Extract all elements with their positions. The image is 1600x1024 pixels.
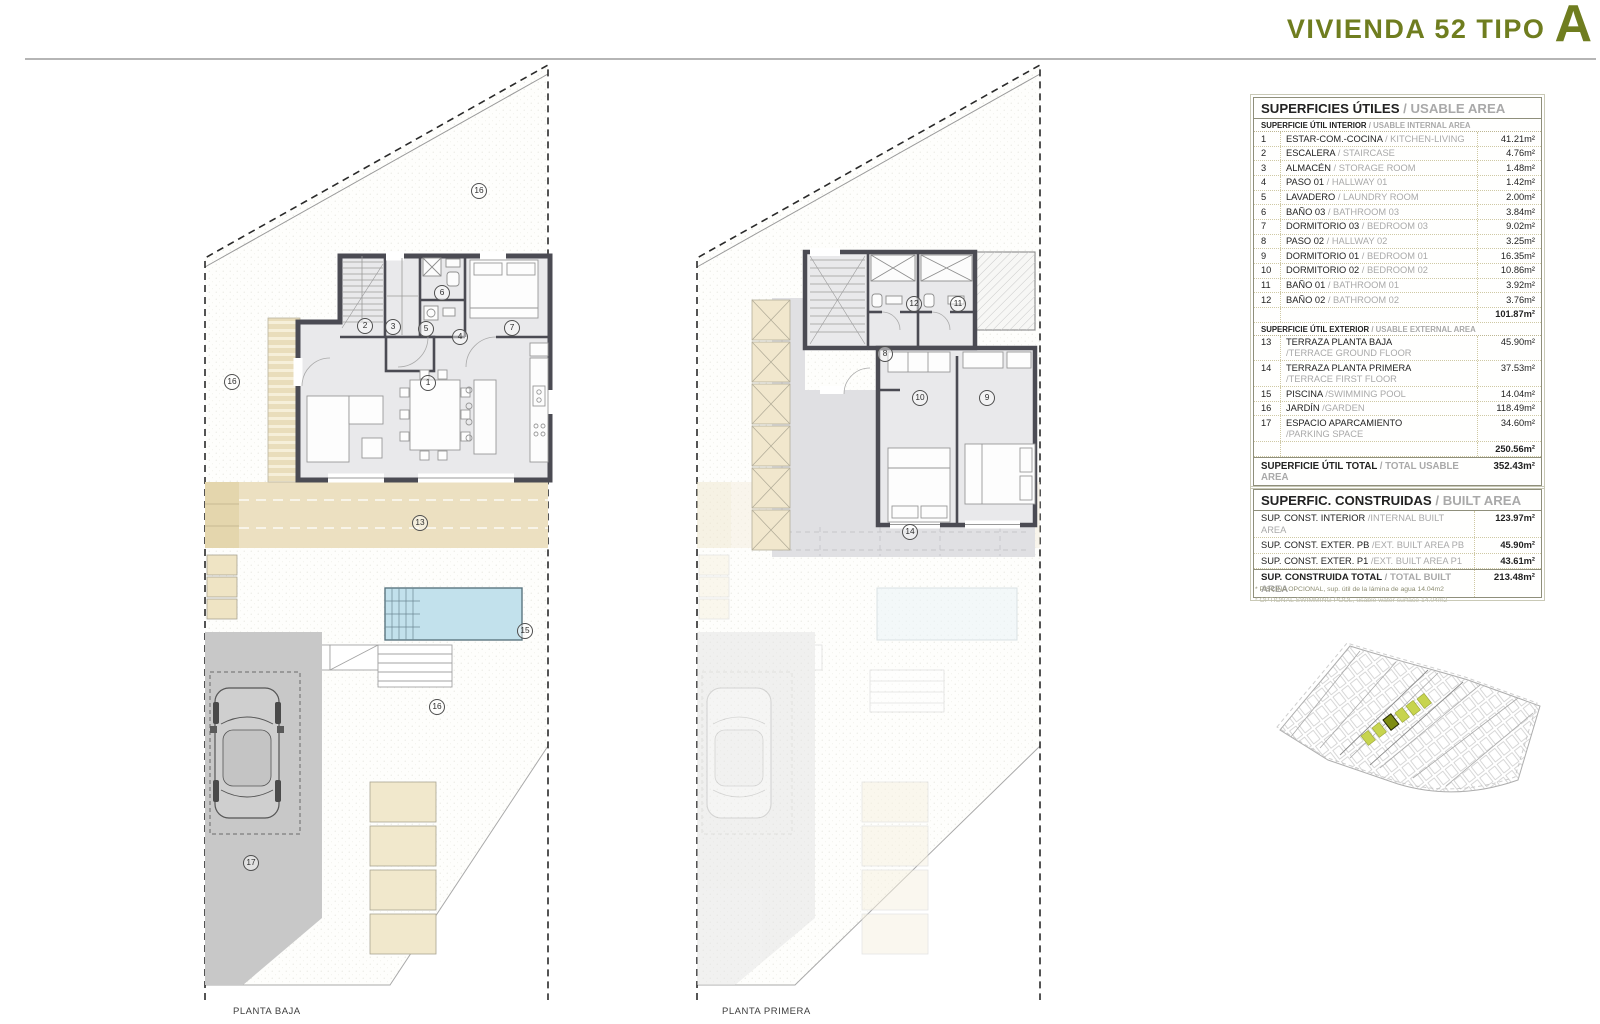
room-label-terrace-ff: 14 (902, 524, 918, 540)
car-icon (210, 688, 284, 818)
table-row: 14TERRAZA PLANTA PRIMERA/TERRACE FIRST F… (1254, 361, 1541, 387)
room-label-garden-side: 16 (224, 374, 240, 390)
parking-area (205, 632, 322, 985)
table-row: 6BAÑO 03 / BATHROOM 033.84m² (1254, 205, 1541, 220)
room-label-staircase: 2 (357, 318, 373, 334)
room-label-garden: 16 (471, 183, 487, 199)
table-row: 9DORMITORIO 01 / BEDROOM 0116.35m² (1254, 249, 1541, 264)
plan-sheet: VIVIENDA 52 TIPO A (0, 0, 1600, 1024)
planta-baja-drawing (180, 60, 565, 1005)
table-footnotes: * PISCINA OPCIONAL, sup. útil de la lámi… (1255, 585, 1544, 607)
table-row: 5LAVADERO / LAUNDRY ROOM2.00m² (1254, 191, 1541, 206)
table-row: SUP. CONST. EXTER. PB /EXT. BUILT AREA P… (1254, 538, 1541, 554)
site-location-map (1228, 618, 1550, 808)
table-row: 4PASO 01 / HALLWAY 011.42m² (1254, 176, 1541, 191)
room-label-terrace-gf: 13 (412, 515, 428, 531)
table-row: 13TERRAZA PLANTA BAJA/TERRACE GROUND FLO… (1254, 336, 1541, 362)
table-row: 11BAÑO 01 / BATHROOM 013.92m² (1254, 279, 1541, 294)
room-label-bath01: 11 (950, 296, 966, 312)
sheet-title: VIVIENDA 52 TIPO A (1287, 4, 1592, 46)
usable-total-row: SUPERFICIE ÚTIL TOTAL / TOTAL USABLE ARE… (1254, 457, 1541, 485)
kitchen-counter (530, 358, 548, 462)
room-label-pool: 15 (517, 623, 533, 639)
exterior-section-header: SUPERFICIE ÚTIL EXTERIOR / USABLE EXTERN… (1254, 323, 1541, 336)
room-label-storage: 3 (385, 319, 401, 335)
caption-planta-primera: PLANTA PRIMERA (722, 1006, 811, 1017)
room-label-parking: 17 (243, 855, 259, 871)
table-row: 17ESPACIO APARCAMIENTO/PARKING SPACE34.6… (1254, 416, 1541, 442)
exterior-subtotal-row: 250.56m² (1254, 442, 1541, 457)
usable-title-es: SUPERFICIES ÚTILES (1261, 101, 1400, 116)
swimming-pool (385, 588, 522, 640)
usable-title-en: / USABLE AREA (1403, 101, 1505, 116)
sofa (307, 396, 349, 462)
usable-area-table: SUPERFICIES ÚTILES / USABLE AREA SUPERFI… (1253, 97, 1542, 486)
planter-steps (207, 555, 237, 619)
sheet-title-text: VIVIENDA 52 TIPO (1287, 13, 1546, 45)
dwelling-type-letter: A (1554, 4, 1592, 46)
room-label-living: 1 (420, 375, 436, 391)
table-row: 10DORMITORIO 02 / BEDROOM 0210.86m² (1254, 264, 1541, 279)
room-label-hall01: 4 (452, 329, 468, 345)
interior-subtotal-row: 101.87m² (1254, 308, 1541, 323)
table-row: 15PISCINA /SWIMMING POOL14.04m² (1254, 387, 1541, 402)
table-row: 3ALMACÉN / STORAGE ROOM1.48m² (1254, 161, 1541, 176)
table-row: 1ESTAR-COM.-COCINA / KITCHEN-LIVING41.21… (1254, 132, 1541, 147)
ground-terrace (205, 482, 548, 548)
site-plots (1228, 618, 1550, 808)
footnote-pool-optional: * PISCINA OPCIONAL, sup. útil de la lámi… (1255, 585, 1544, 596)
built-table-title: SUPERFIC. CONSTRUIDAS / BUILT AREA (1254, 490, 1541, 511)
room-label-bedroom03: 7 (504, 320, 520, 336)
room-label-garden-main: 16 (429, 699, 445, 715)
room-label-bedroom02: 10 (912, 390, 928, 406)
planta-primera-drawing (660, 60, 1045, 1005)
room-label-bath03: 6 (434, 285, 450, 301)
table-row: SUP. CONST. EXTER. P1 /EXT. BUILT AREA P… (1254, 554, 1541, 570)
open-roof-terrace (975, 252, 1035, 330)
fridge (530, 343, 548, 356)
table-row: 12BAÑO 02 / BATHROOM 023.76m² (1254, 293, 1541, 308)
room-label-bath02: 12 (906, 296, 922, 312)
bed-double (470, 260, 538, 318)
table-row: 16JARDÍN /GARDEN118.49m² (1254, 402, 1541, 417)
table-row: 7DORMITORIO 03 / BEDROOM 039.02m² (1254, 220, 1541, 235)
table-row: SUP. CONST. INTERIOR /INTERNAL BUILT ARE… (1254, 511, 1541, 538)
built-area-table: SUPERFIC. CONSTRUIDAS / BUILT AREA SUP. … (1253, 489, 1542, 598)
room-label-hall02: 8 (877, 346, 893, 362)
coffee-table (362, 438, 382, 458)
footnote-pool-optional-en: * OPTIONAL SWIMMING POOL, usable water s… (1255, 596, 1544, 607)
pergola-slats (268, 318, 300, 482)
table-row: 8PASO 02 / HALLWAY 023.25m² (1254, 235, 1541, 250)
caption-planta-baja: PLANTA BAJA (233, 1006, 301, 1017)
interior-section-header: SUPERFICIE ÚTIL INTERIOR / USABLE INTERN… (1254, 119, 1541, 132)
dining-table (410, 380, 460, 450)
usable-table-title: SUPERFICIES ÚTILES / USABLE AREA (1254, 98, 1541, 119)
kitchen-island (474, 380, 496, 454)
table-row: 2ESCALERA / STAIRCASE4.76m² (1254, 147, 1541, 162)
room-label-laundry: 5 (418, 321, 434, 337)
room-label-bedroom01: 9 (979, 390, 995, 406)
